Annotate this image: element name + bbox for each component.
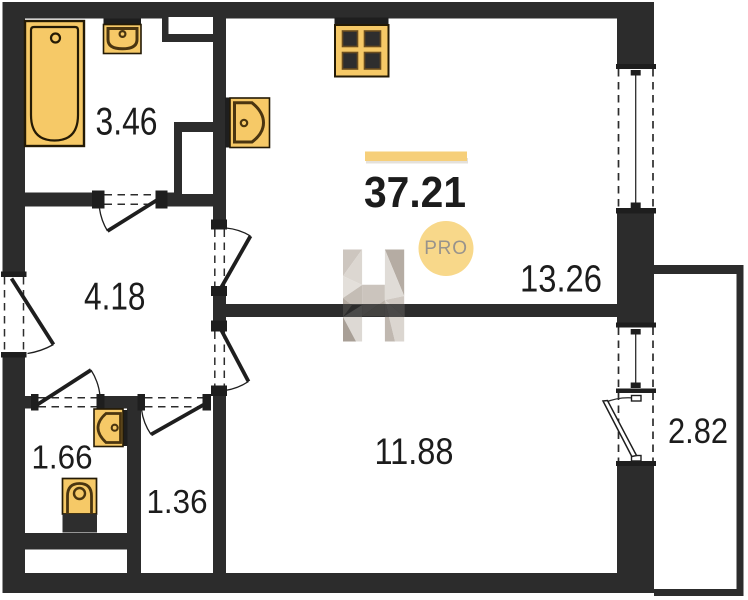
svg-text:3.46: 3.46: [96, 101, 158, 144]
svg-text:13.26: 13.26: [520, 259, 602, 301]
svg-text:4.18: 4.18: [84, 276, 146, 319]
svg-text:37.21: 37.21: [364, 168, 466, 217]
svg-text:PRO: PRO: [424, 238, 468, 259]
svg-text:1.36: 1.36: [147, 483, 208, 520]
svg-text:2.82: 2.82: [668, 411, 728, 451]
svg-text:11.88: 11.88: [375, 431, 454, 472]
svg-text:1.66: 1.66: [32, 439, 93, 476]
